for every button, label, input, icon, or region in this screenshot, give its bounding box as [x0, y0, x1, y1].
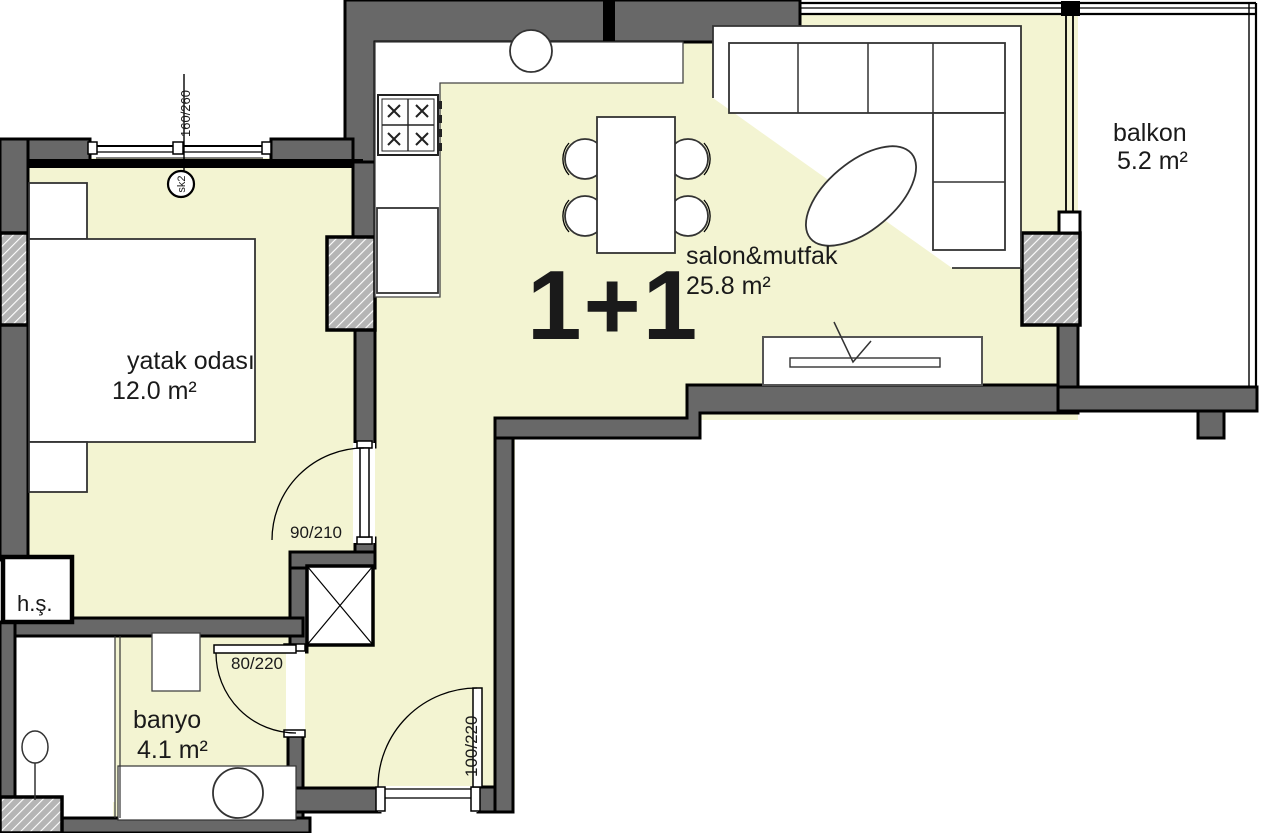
tv-screen — [790, 358, 940, 367]
stove — [378, 95, 442, 155]
bedroom-label: yatak odası — [127, 347, 255, 375]
hallway-east-wall — [495, 437, 513, 812]
floor-plan: h.ş. 160/260 sk2 90/210 — [0, 0, 1263, 833]
bedroom-right-wall-upper — [353, 162, 375, 240]
window-dimension: 160/260 sk2 — [168, 74, 194, 197]
bathroom-label: banyo — [133, 706, 201, 734]
window-size-label: 160/260 — [178, 90, 193, 137]
washing-machine — [152, 633, 200, 691]
dining-table — [597, 117, 675, 253]
hatched-block-bottom-left — [0, 797, 62, 833]
window-inner-edge — [28, 159, 363, 168]
entrance-wall-left — [290, 788, 380, 812]
bedroom-area: 12.0 m² — [112, 377, 197, 405]
balcony-area: 5.2 m² — [1117, 147, 1188, 175]
bedroom-left-wall — [0, 139, 28, 560]
bed-body — [29, 239, 255, 442]
bedroom-window — [88, 142, 271, 158]
window-tag-label: sk2 — [176, 175, 188, 192]
column-bedroom-left — [0, 233, 28, 325]
fridge — [377, 208, 438, 293]
balcony-wall-stub — [1198, 411, 1224, 438]
kitchen-sink — [510, 30, 552, 72]
column-living-east — [1022, 233, 1080, 325]
bathroom-area: 4.1 m² — [137, 736, 208, 764]
column-bedroom-right — [327, 237, 375, 330]
air-shaft-label: h.ş. — [17, 591, 52, 616]
living-east-wall — [1058, 323, 1078, 387]
balcony-rail-top — [800, 3, 1256, 14]
living-kitchen-area: 25.8 m² — [686, 272, 771, 300]
bedroom-right-wall-mid — [355, 330, 375, 447]
floor-plan-canvas: h.ş. 160/260 sk2 90/210 — [0, 0, 1263, 833]
balcony-floor — [1080, 14, 1257, 387]
nightstand-top — [29, 183, 87, 239]
shaft-west-wall — [290, 568, 307, 652]
plan-type-label: 1+1 — [527, 250, 699, 360]
bedroom-door-size: 90/210 — [290, 523, 342, 542]
bathroom-west-wall — [0, 622, 15, 797]
bathtub — [118, 766, 296, 820]
shaft-box — [307, 566, 373, 645]
duct-area-floor — [13, 622, 115, 802]
balcony-bottom-wall — [1058, 387, 1257, 411]
air-shaft-box: h.ş. — [3, 557, 72, 622]
living-kitchen-label: salon&mutfak — [686, 242, 838, 270]
nightstand-bottom — [29, 442, 87, 492]
entrance-door-size: 100/220 — [462, 716, 481, 777]
bathroom-door-size: 80/220 — [231, 654, 283, 673]
balcony-label: balkon — [1113, 119, 1187, 147]
